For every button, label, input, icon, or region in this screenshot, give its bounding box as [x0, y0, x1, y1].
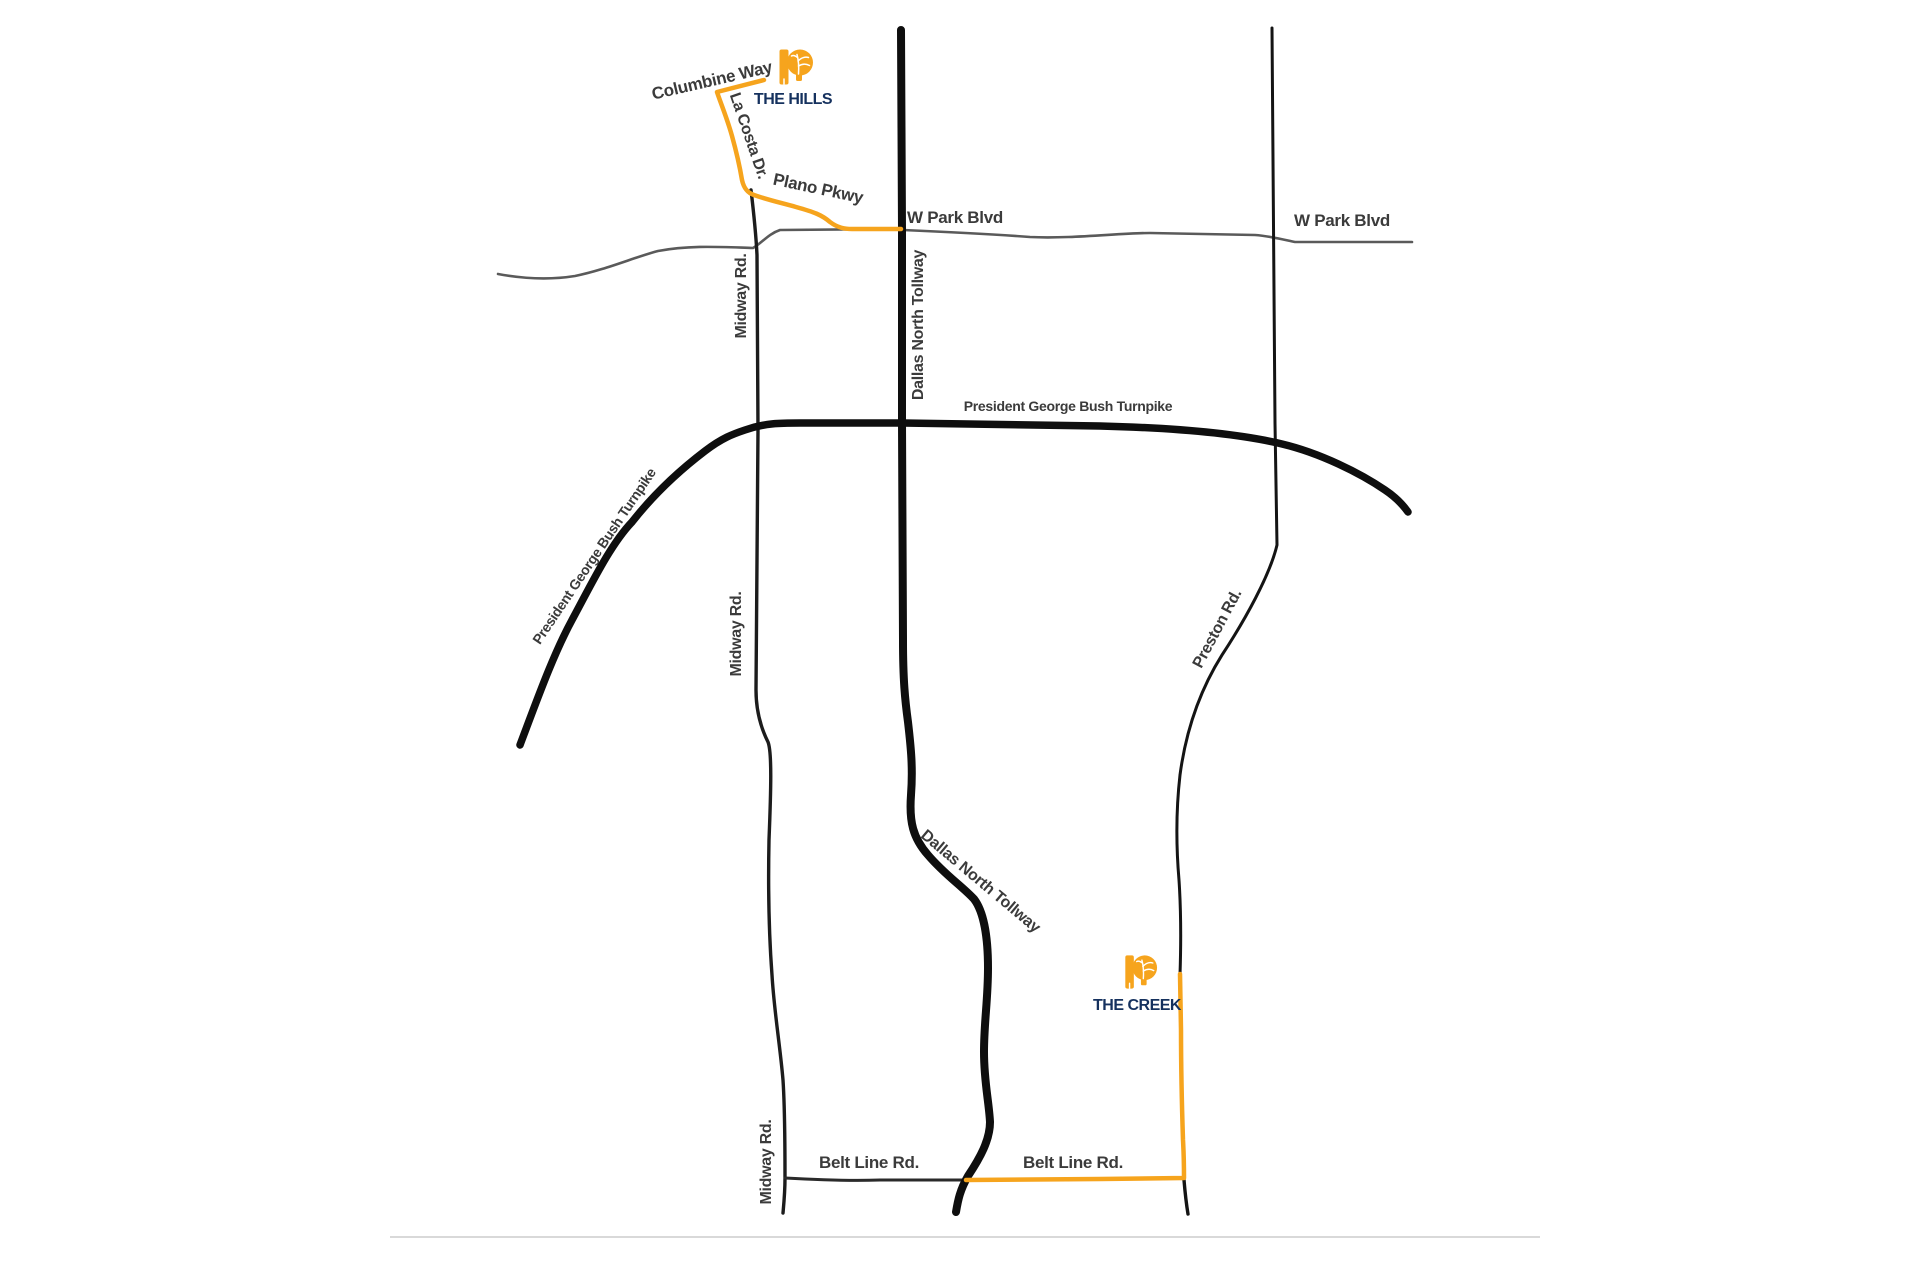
road-network — [0, 0, 1920, 1280]
label-w-park-blvd-west: W Park Blvd — [907, 208, 1003, 228]
road-preston-rd — [1177, 28, 1277, 975]
road-midway-rd — [751, 190, 785, 1213]
label-midway-rd-mid: Midway Rd. — [728, 591, 746, 676]
road-belt-line-rd-west — [785, 1178, 963, 1180]
road-w-park-blvd-west — [498, 229, 901, 278]
road-w-park-blvd-east — [903, 230, 1412, 242]
access-map: Columbine Way La Costa Dr. Plano Pkwy W … — [0, 0, 1920, 1280]
label-belt-line-rd-west: Belt Line Rd. — [819, 1153, 919, 1173]
the-creek-label: THE CREEK — [1093, 997, 1181, 1015]
the-hills-p-logo-icon — [776, 46, 814, 88]
label-belt-line-rd-east: Belt Line Rd. — [1023, 1153, 1123, 1173]
label-pgbt-horizontal: President George Bush Turnpike — [964, 398, 1173, 414]
bottom-divider — [390, 1236, 1540, 1238]
label-dallas-north-tollway-north: Dallas North Tollway — [910, 250, 928, 400]
label-w-park-blvd-east: W Park Blvd — [1294, 211, 1390, 231]
road-preston-rd-south-stub — [1184, 1180, 1188, 1214]
label-midway-rd-north: Midway Rd. — [733, 253, 751, 338]
the-hills-label: THE HILLS — [754, 91, 832, 109]
label-midway-rd-south: Midway Rd. — [758, 1119, 776, 1204]
the-creek-p-logo-icon — [1122, 951, 1158, 993]
